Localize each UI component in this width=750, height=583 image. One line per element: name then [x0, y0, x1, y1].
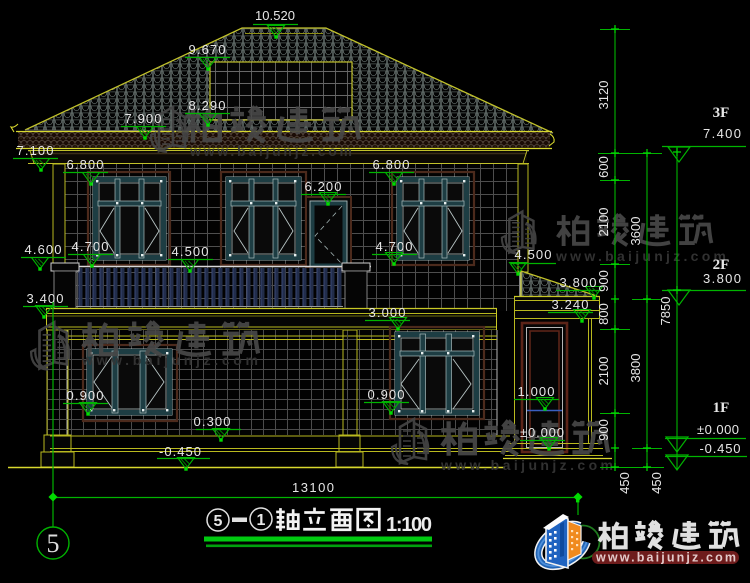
svg-text:7.100: 7.100 [17, 143, 54, 158]
svg-text:3.240: 3.240 [552, 297, 589, 312]
svg-text:13100: 13100 [292, 480, 334, 495]
svg-text:0.900: 0.900 [67, 388, 104, 403]
svg-text:2100: 2100 [596, 357, 611, 386]
svg-text:2100: 2100 [596, 208, 611, 237]
svg-text:±0.000: ±0.000 [520, 425, 564, 440]
svg-text:4.600: 4.600 [25, 242, 62, 257]
svg-text:0.900: 0.900 [368, 387, 405, 402]
svg-text:-0.450: -0.450 [700, 441, 741, 456]
svg-text:5: 5 [214, 513, 223, 530]
svg-text:4.500: 4.500 [515, 247, 552, 262]
svg-text:8.290: 8.290 [189, 98, 226, 113]
svg-text:7.900: 7.900 [125, 111, 162, 126]
svg-text:3800: 3800 [628, 354, 643, 383]
svg-text:450: 450 [617, 472, 632, 494]
svg-text:900: 900 [596, 419, 611, 441]
svg-text:3600: 3600 [628, 217, 643, 246]
svg-text:3120: 3120 [596, 81, 611, 110]
svg-text:4.500: 4.500 [172, 244, 209, 259]
svg-text:450: 450 [649, 472, 664, 494]
svg-text:±0.000: ±0.000 [697, 422, 739, 437]
svg-text:3.000: 3.000 [369, 305, 406, 320]
svg-text:7.400: 7.400 [703, 126, 741, 141]
svg-text:9.670: 9.670 [189, 42, 226, 57]
svg-text:3.800: 3.800 [703, 271, 741, 286]
svg-text:10.520: 10.520 [255, 8, 295, 23]
svg-text:1:100: 1:100 [386, 514, 432, 536]
svg-text:1F: 1F [713, 400, 730, 416]
svg-text:600: 600 [596, 156, 611, 178]
svg-text:6.200: 6.200 [305, 179, 342, 194]
svg-text:1.000: 1.000 [518, 384, 555, 399]
svg-text:7850: 7850 [658, 297, 673, 326]
svg-text:4.700: 4.700 [72, 239, 109, 254]
svg-text:0.300: 0.300 [194, 414, 231, 429]
svg-text:4.700: 4.700 [376, 239, 413, 254]
svg-text:900: 900 [596, 270, 611, 292]
svg-text:3.400: 3.400 [27, 291, 64, 306]
svg-text:3.800: 3.800 [560, 275, 597, 290]
svg-text:-0.450: -0.450 [159, 444, 201, 459]
svg-text:3F: 3F [713, 105, 730, 121]
svg-text:5: 5 [47, 529, 60, 558]
svg-text:6.800: 6.800 [373, 157, 410, 172]
svg-text:6.800: 6.800 [67, 157, 104, 172]
svg-text:800: 800 [596, 303, 611, 325]
svg-text:1: 1 [257, 512, 266, 529]
